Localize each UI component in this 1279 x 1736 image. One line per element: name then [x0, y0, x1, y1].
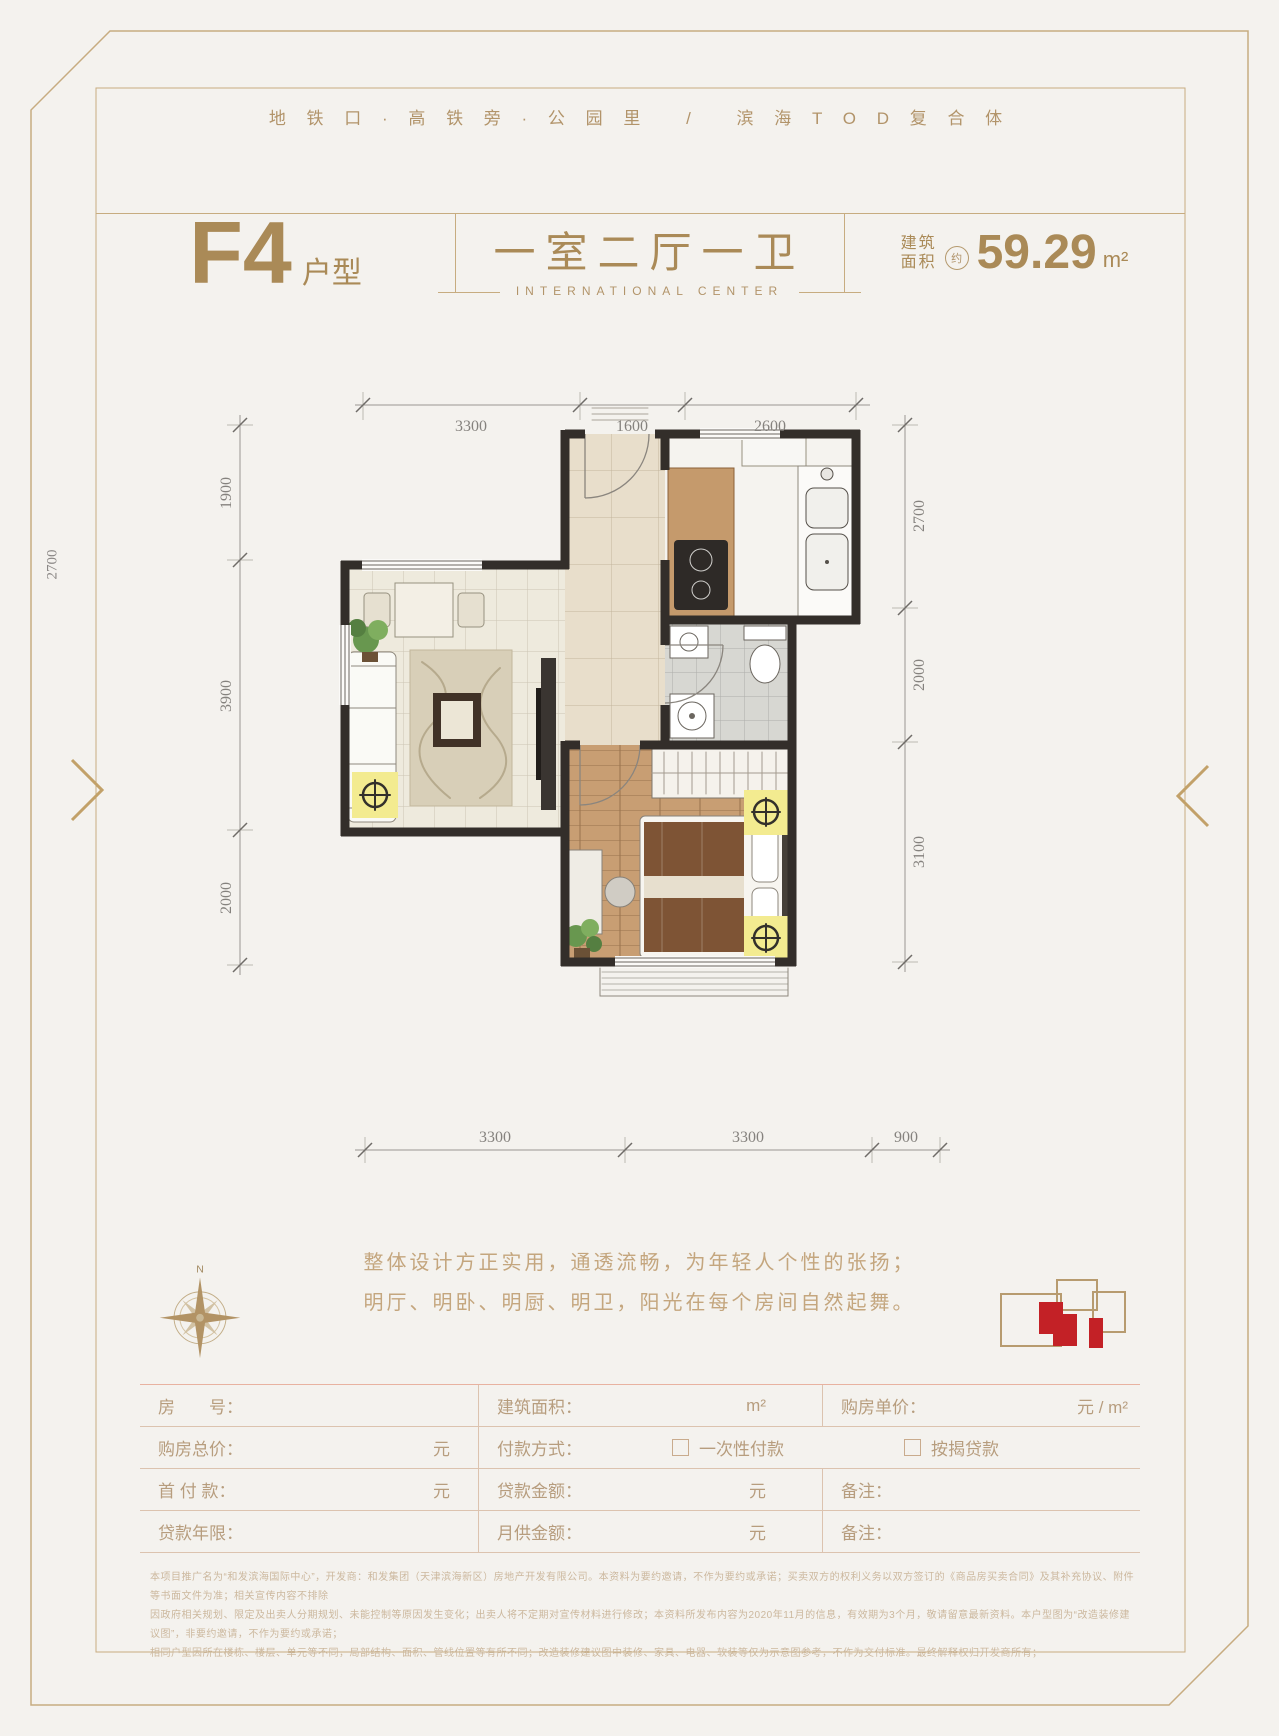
- prev-page-chevron[interactable]: [64, 752, 110, 828]
- flyer-page: 地 铁 口 · 高 铁 旁 · 公 园 里 / 滨 海 T O D 复 合 体 …: [0, 0, 1279, 1736]
- unit-highlight: [1039, 1302, 1077, 1346]
- loan-amount-unit: 元: [749, 1477, 766, 1502]
- spotlight-symbol: [744, 790, 789, 835]
- form-row-1: 房 号： 建筑面积： m² 购房单价： 元 / m²: [140, 1384, 1140, 1427]
- area-field: 建筑面积： m²: [478, 1385, 822, 1426]
- down-payment-field: 首 付 款： 元: [140, 1469, 478, 1510]
- disclaimer-line2: 因政府相关规划、限定及出卖人分期规划、未能控制等原因发生变化；出卖人将不定期对宣…: [150, 1606, 1138, 1644]
- unit-location-key: [993, 1276, 1133, 1354]
- mortgage-checkbox[interactable]: [904, 1439, 921, 1456]
- note-label: 备注：: [841, 1477, 892, 1502]
- down-payment-unit: 元: [433, 1477, 450, 1502]
- loan-amount-field: 贷款金额： 元: [478, 1469, 822, 1510]
- monthly-payment-field: 月供金额： 元: [478, 1511, 822, 1552]
- unit-price-unit: 元 / m²: [1077, 1393, 1128, 1418]
- area-label-line1: 建筑: [901, 234, 937, 253]
- spotlight-symbol: [744, 916, 789, 961]
- room-number-field: 房 号：: [140, 1385, 478, 1426]
- payment-method-label: 付款方式：: [497, 1435, 582, 1460]
- dim-right-3: 3100: [911, 836, 928, 868]
- dim-top-3: 2600: [754, 418, 786, 435]
- unit-code-box: F4 户型: [96, 213, 455, 293]
- chevron-left-icon: [1178, 766, 1208, 826]
- note-label-2: 备注：: [841, 1519, 892, 1544]
- loan-years-label: 贷款年限：: [158, 1519, 243, 1544]
- tagline: 地 铁 口 · 高 铁 旁 · 公 园 里 / 滨 海 T O D 复 合 体: [0, 104, 1279, 129]
- note-field: 备注：: [822, 1469, 1140, 1510]
- down-payment-label: 首 付 款：: [158, 1477, 235, 1502]
- dim-left-1: 1900: [218, 477, 235, 509]
- note-field-2: 备注：: [822, 1511, 1140, 1552]
- dim-left-3: 2000: [218, 882, 235, 914]
- compass-north-label: N: [196, 1264, 204, 1276]
- legal-disclaimer: 本项目推广名为“和发滨海国际中心”，开发商：和发集团（天津滨海新区）房地产开发有…: [150, 1568, 1138, 1663]
- dining-chair: [458, 593, 484, 627]
- unit-highlight: [1089, 1318, 1103, 1348]
- wash-basin: [670, 626, 708, 658]
- monthly-payment-unit: 元: [749, 1519, 766, 1544]
- dim-bottom-3: 900: [894, 1129, 918, 1146]
- unit-code: F4: [189, 209, 292, 297]
- form-row-2: 购房总价： 元 付款方式： 一次性付款 按揭贷款: [140, 1427, 1140, 1469]
- unit-price-label: 购房单价：: [841, 1393, 926, 1418]
- kitchen-sink: [806, 488, 848, 528]
- toilet-tank: [744, 626, 786, 640]
- layout-name: 一室二厅一卫: [493, 232, 805, 274]
- dim-top-2: 1600: [616, 418, 648, 435]
- unit-price-field: 购房单价： 元 / m²: [822, 1385, 1140, 1426]
- floorplan: 3300 1600 2600 1900 3900 2000 2700 2000 …: [200, 345, 960, 1175]
- one-time-payment-label: 一次性付款: [699, 1435, 784, 1460]
- subtitle: INTERNATIONAL CENTER: [455, 284, 844, 298]
- loan-amount-label: 贷款金额：: [497, 1477, 582, 1502]
- layout-box: 一室二厅一卫: [455, 213, 844, 293]
- disclaimer-line3: 相同户型因所在楼栋、楼层、单元等不同，局部结构、面积、管线位置等有所不同；改造装…: [150, 1644, 1138, 1663]
- area-unit: m²: [1103, 247, 1129, 273]
- loan-years-field: 贷款年限：: [140, 1511, 478, 1552]
- dim-left-2: 3900: [218, 680, 235, 712]
- total-price-unit: 元: [433, 1435, 450, 1460]
- dim-right-1: 2700: [911, 500, 928, 532]
- area-value: 59.29: [977, 229, 1097, 277]
- faucet: [821, 468, 833, 480]
- disclaimer-line1: 本项目推广名为“和发滨海国际中心”，开发商：和发集团（天津滨海新区）房地产开发有…: [150, 1568, 1138, 1606]
- dim-right-2: 2000: [911, 659, 928, 691]
- approx-badge: 约: [945, 246, 969, 270]
- tv: [536, 688, 541, 780]
- dim-top-1: 3300: [455, 418, 487, 435]
- toilet: [750, 645, 780, 683]
- spotlight-symbol: [352, 772, 398, 818]
- room-number-label: 房 号：: [158, 1393, 243, 1418]
- next-page-chevron[interactable]: [1170, 758, 1216, 834]
- tv-cabinet: [541, 658, 556, 810]
- mortgage-label: 按揭贷款: [931, 1435, 999, 1460]
- area-field-label: 建筑面积：: [497, 1393, 582, 1418]
- chevron-right-icon: [72, 760, 102, 820]
- area-label-line2: 面积: [901, 253, 937, 272]
- area-box: 建筑 面积 约 59.29 m²: [844, 213, 1185, 293]
- payment-method-field: 付款方式： 一次性付款 按揭贷款: [478, 1427, 1140, 1468]
- area-label: 建筑 面积: [901, 234, 937, 272]
- dim-bottom-2: 3300: [732, 1129, 764, 1146]
- total-price-field: 购房总价： 元: [140, 1427, 478, 1468]
- total-price-label: 购房总价：: [158, 1435, 243, 1460]
- purchase-form: 房 号： 建筑面积： m² 购房单价： 元 / m² 购房总价： 元 付款方式：…: [140, 1384, 1140, 1553]
- one-time-payment-checkbox[interactable]: [672, 1439, 689, 1456]
- compass-rose-icon: N: [152, 1262, 248, 1362]
- form-row-4: 贷款年限： 月供金额： 元 备注：: [140, 1511, 1140, 1553]
- dim-bottom-1: 3300: [479, 1129, 511, 1146]
- balcony-bay: [600, 968, 788, 996]
- kitchen-cabinet: [742, 438, 806, 466]
- form-row-3: 首 付 款： 元 贷款金额： 元 备注：: [140, 1469, 1140, 1511]
- chair: [605, 877, 635, 907]
- dim-far-left: 2700: [45, 534, 62, 596]
- area-field-unit: m²: [746, 1396, 766, 1416]
- dining-table: [395, 583, 453, 637]
- unit-code-suffix: 户型: [302, 248, 362, 292]
- monthly-payment-label: 月供金额：: [497, 1519, 582, 1544]
